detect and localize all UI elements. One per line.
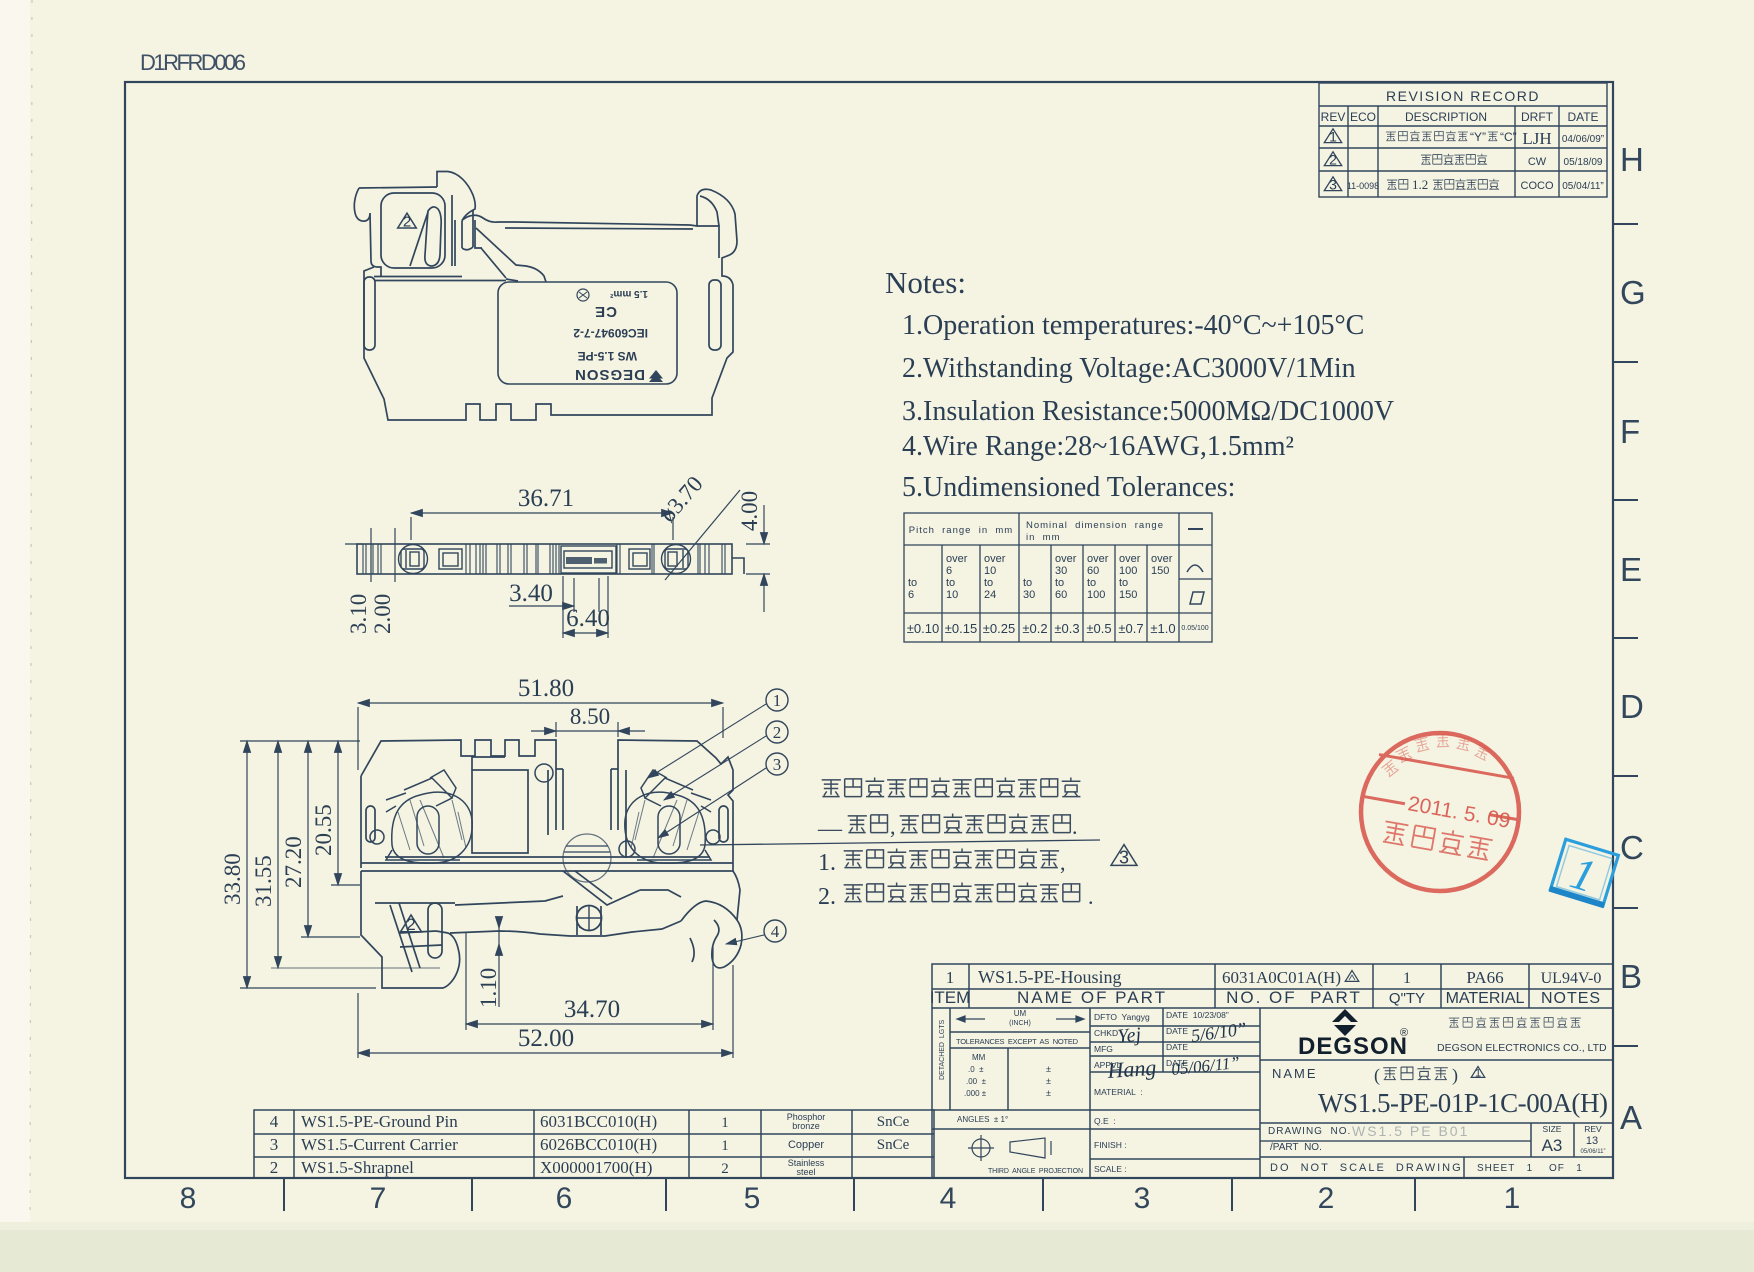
svg-text:2: 2	[721, 1161, 729, 1177]
svg-text:6: 6	[556, 1182, 573, 1215]
svg-text:NAME OF PART: NAME OF PART	[1017, 988, 1167, 1007]
svg-text:NO. OF PART: NO. OF PART	[1226, 988, 1362, 1007]
svg-text:“Y”: “Y”	[1470, 130, 1486, 144]
svg-text:1.2: 1.2	[1412, 177, 1428, 192]
svg-text:2.00: 2.00	[370, 594, 395, 634]
svg-text:Notes:: Notes:	[885, 265, 966, 300]
svg-text:over: over	[946, 553, 968, 565]
svg-text:UL94V-0: UL94V-0	[1541, 970, 1602, 987]
svg-text:DRFT: DRFT	[1521, 110, 1554, 124]
svg-text:1: 1	[1329, 128, 1337, 144]
svg-text:60: 60	[1055, 589, 1067, 601]
svg-text:DATE: DATE	[1166, 1042, 1188, 1052]
svg-text:.: .	[1072, 814, 1078, 839]
svg-text:F: F	[1620, 413, 1640, 450]
svg-text:CW: CW	[1528, 156, 1547, 168]
svg-text:over: over	[984, 553, 1006, 565]
svg-text:E: E	[1620, 551, 1642, 588]
svg-text:A3: A3	[1542, 1136, 1563, 1155]
svg-text:4.Wire Range:28~16AWG,1.5mm²: 4.Wire Range:28~16AWG,1.5mm²	[902, 431, 1294, 462]
svg-text:30: 30	[1055, 565, 1067, 577]
svg-text:36.71: 36.71	[518, 485, 574, 512]
svg-text:to: to	[908, 577, 917, 589]
svg-text:LJH: LJH	[1522, 129, 1551, 148]
svg-text:over: over	[1119, 553, 1141, 565]
svg-text:SnCe: SnCe	[877, 1114, 910, 1130]
svg-text:±0.15: ±0.15	[945, 621, 977, 636]
svg-text:1: 1	[773, 691, 782, 710]
svg-text:to: to	[1023, 577, 1032, 589]
svg-text:WS1.5-PE-Housing: WS1.5-PE-Housing	[978, 967, 1122, 987]
svg-text:2: 2	[1318, 1182, 1335, 1215]
svg-text:D1RFRD006: D1RFRD006	[140, 50, 246, 75]
svg-text:04/06/09”: 04/06/09”	[1562, 134, 1604, 145]
svg-text:,: ,	[1060, 850, 1066, 875]
svg-text:3.10: 3.10	[346, 594, 371, 634]
svg-text:05/06/11”: 05/06/11”	[1581, 1149, 1606, 1155]
svg-text:MM: MM	[972, 1053, 986, 1062]
svg-text:CE: CE	[594, 303, 617, 320]
svg-text:27.20: 27.20	[281, 836, 306, 888]
svg-text:.00 ±: .00 ±	[966, 1077, 987, 1086]
svg-text:6031BCC010(H): 6031BCC010(H)	[540, 1112, 657, 1131]
svg-text:1.: 1.	[818, 850, 836, 876]
svg-text:DFTO Yangyg: DFTO Yangyg	[1094, 1012, 1150, 1022]
svg-text:THIRD ANGLE PROJECTION: THIRD ANGLE PROJECTION	[988, 1168, 1083, 1175]
svg-text:1: 1	[721, 1138, 729, 1154]
svg-text:3: 3	[270, 1135, 279, 1154]
svg-text:3: 3	[773, 755, 782, 774]
svg-text:1.10: 1.10	[476, 968, 501, 1008]
svg-text:4: 4	[270, 1112, 279, 1131]
svg-text:05/04/11”: 05/04/11”	[1562, 181, 1604, 192]
svg-text:—: —	[817, 816, 843, 842]
svg-text:SnCe: SnCe	[877, 1137, 910, 1153]
svg-text:±1.0: ±1.0	[1150, 621, 1175, 636]
svg-text:MATERIAL :: MATERIAL :	[1094, 1087, 1143, 1097]
svg-text:DEGSON: DEGSON	[1298, 1033, 1408, 1060]
svg-text:60: 60	[1087, 565, 1099, 577]
svg-text:2.Withstanding Voltage:AC3000V: 2.Withstanding Voltage:AC3000V/1Min	[902, 353, 1356, 384]
svg-text:UM: UM	[1014, 1009, 1027, 1018]
svg-text:1: 1	[721, 1115, 729, 1131]
svg-text:24: 24	[984, 589, 996, 601]
svg-text:WS1.5-PE-Ground Pin: WS1.5-PE-Ground Pin	[301, 1112, 458, 1131]
svg-text:3.Insulation Resistance:5000MΩ: 3.Insulation Resistance:5000MΩ/DC1000V	[902, 396, 1394, 427]
svg-text:to: to	[1087, 577, 1096, 589]
svg-text:NOTES: NOTES	[1541, 990, 1601, 1007]
svg-text:DATE: DATE	[1567, 110, 1598, 124]
svg-text:(: (	[1374, 1065, 1380, 1086]
svg-text:(INCH): (INCH)	[1009, 1020, 1031, 1027]
svg-text:4: 4	[940, 1182, 957, 1215]
svg-text:2: 2	[1329, 151, 1337, 167]
svg-text:±0.10: ±0.10	[907, 621, 939, 636]
svg-text:to: to	[984, 577, 993, 589]
svg-text:1: 1	[1403, 970, 1411, 987]
svg-text:WS1.5-Shrapnel: WS1.5-Shrapnel	[301, 1158, 414, 1177]
svg-text:A: A	[1620, 1099, 1642, 1136]
svg-text:6026BCC010(H): 6026BCC010(H)	[540, 1135, 657, 1154]
svg-text:DEGSON ELECTRONICS CO., LTD: DEGSON ELECTRONICS CO., LTD	[1437, 1042, 1607, 1054]
svg-text:ITEM: ITEM	[930, 988, 971, 1007]
svg-text:REV: REV	[1321, 110, 1346, 124]
svg-text:7: 7	[370, 1182, 387, 1215]
svg-text:5: 5	[744, 1182, 761, 1215]
svg-text:4.00: 4.00	[737, 491, 762, 531]
svg-text:MATERIAL: MATERIAL	[1446, 990, 1525, 1007]
svg-text:4: 4	[771, 922, 780, 941]
svg-text:SHEET 1: SHEET 1	[1477, 1163, 1533, 1174]
svg-text:1: 1	[1504, 1182, 1521, 1215]
svg-text:Copper: Copper	[788, 1139, 824, 1151]
svg-text:MFG: MFG	[1094, 1044, 1113, 1054]
svg-text:IEC60947-7-2: IEC60947-7-2	[573, 326, 648, 340]
svg-text:1: 1	[946, 968, 955, 987]
svg-text:®: ®	[1400, 1027, 1408, 1039]
svg-text:8: 8	[180, 1182, 197, 1215]
svg-text:±: ±	[1046, 1088, 1051, 1098]
svg-text:in mm: in mm	[1026, 532, 1061, 543]
svg-text:NAME: NAME	[1272, 1066, 1318, 1081]
svg-text:33.80: 33.80	[220, 853, 245, 905]
svg-text:Pitch range in mm: Pitch range in mm	[909, 525, 1013, 536]
svg-text:150: 150	[1151, 565, 1169, 577]
svg-text:Yej: Yej	[1116, 1024, 1142, 1048]
svg-text:to: to	[946, 577, 955, 589]
svg-text:3: 3	[1329, 176, 1337, 192]
svg-text:WS 1.5-PE: WS 1.5-PE	[578, 349, 637, 363]
svg-text:over: over	[1055, 553, 1077, 565]
svg-text:over: over	[1087, 553, 1109, 565]
svg-text:2.: 2.	[818, 884, 836, 910]
svg-text:/PART NO.: /PART NO.	[1270, 1142, 1322, 1153]
svg-text:DESCRIPTION: DESCRIPTION	[1405, 110, 1487, 124]
svg-text:05/18/09: 05/18/09	[1564, 157, 1603, 168]
svg-text:FINISH :: FINISH :	[1094, 1140, 1127, 1150]
svg-text:±: ±	[1046, 1076, 1051, 1086]
svg-text:CHKD: CHKD	[1094, 1028, 1118, 1038]
svg-text:52.00: 52.00	[518, 1025, 574, 1052]
svg-text:5.Undimensioned Tolerances:: 5.Undimensioned Tolerances:	[902, 472, 1235, 503]
svg-text:31.55: 31.55	[251, 855, 276, 907]
svg-text:100: 100	[1119, 565, 1137, 577]
svg-text:2: 2	[403, 214, 411, 231]
svg-text:6: 6	[908, 589, 914, 601]
svg-text:H: H	[1620, 141, 1644, 178]
svg-text:.0 ±: .0 ±	[968, 1065, 984, 1074]
svg-text:±: ±	[1046, 1064, 1051, 1074]
svg-text:to: to	[1055, 577, 1064, 589]
svg-text:DATE 10/23/08”: DATE 10/23/08”	[1166, 1010, 1229, 1020]
svg-text:±0.2: ±0.2	[1022, 621, 1047, 636]
svg-text:1: 1	[1475, 1067, 1481, 1079]
svg-text:.000 ±: .000 ±	[964, 1089, 987, 1098]
svg-text:3.40: 3.40	[509, 580, 553, 607]
svg-text:PA66: PA66	[1466, 968, 1503, 987]
svg-text:6: 6	[946, 565, 952, 577]
svg-text:WS1.5-PE-01P-1C-00A(H): WS1.5-PE-01P-1C-00A(H)	[1318, 1088, 1608, 1118]
svg-text:TOLERANCES EXCEPT AS NOTED: TOLERANCES EXCEPT AS NOTED	[956, 1037, 1079, 1046]
svg-text:3: 3	[1134, 1182, 1151, 1215]
svg-text:DETACHED LGTS: DETACHED LGTS	[939, 1020, 946, 1080]
svg-text:10: 10	[946, 589, 958, 601]
svg-text:to: to	[1119, 577, 1128, 589]
svg-text:C: C	[1620, 829, 1644, 866]
svg-text:13: 13	[1586, 1135, 1598, 1147]
svg-text:SCALE :: SCALE :	[1094, 1164, 1127, 1174]
svg-text:Hang: Hang	[1106, 1055, 1158, 1083]
svg-text:Q"TY: Q"TY	[1389, 990, 1425, 1007]
svg-text:DATE: DATE	[1166, 1026, 1188, 1036]
svg-text:20.55: 20.55	[311, 804, 336, 856]
svg-text:51.80: 51.80	[518, 675, 574, 702]
svg-text:2: 2	[270, 1158, 279, 1177]
svg-text:over: over	[1151, 553, 1173, 565]
svg-text:COCO: COCO	[1521, 180, 1554, 192]
svg-text:WS1.5-Current Carrier: WS1.5-Current Carrier	[301, 1135, 458, 1154]
svg-text:DEGSON: DEGSON	[574, 366, 645, 383]
svg-text:DO NOT SCALE DRAWING: DO NOT SCALE DRAWING	[1270, 1162, 1463, 1174]
svg-text:6031A0C01A(H): 6031A0C01A(H)	[1222, 968, 1341, 987]
svg-text:ECO: ECO	[1350, 110, 1376, 124]
svg-text:±0.7: ±0.7	[1118, 621, 1143, 636]
svg-text:±0.5: ±0.5	[1086, 621, 1111, 636]
svg-text:DRAWING NO.: DRAWING NO.	[1268, 1126, 1351, 1137]
svg-text:REV: REV	[1584, 1124, 1602, 1134]
svg-text:1.Operation temperatures:-40°C: 1.Operation temperatures:-40°C~+105°C	[902, 310, 1364, 341]
svg-text:SIZE: SIZE	[1543, 1124, 1562, 1134]
svg-text:B: B	[1620, 958, 1642, 995]
svg-text:2: 2	[406, 915, 415, 934]
svg-text:REVISION RECORD: REVISION RECORD	[1386, 88, 1540, 104]
svg-text:Q.E :: Q.E :	[1094, 1116, 1116, 1126]
svg-text:3: 3	[1119, 847, 1129, 867]
svg-text:30: 30	[1023, 589, 1035, 601]
svg-text:steel: steel	[796, 1167, 815, 1177]
svg-text:bronze: bronze	[792, 1121, 820, 1131]
svg-text:8.50: 8.50	[570, 704, 610, 729]
svg-text:100: 100	[1087, 589, 1105, 601]
svg-text:34.70: 34.70	[564, 996, 620, 1023]
svg-text:D: D	[1620, 688, 1644, 725]
svg-text:±0.25: ±0.25	[983, 621, 1015, 636]
svg-text:10: 10	[984, 565, 996, 577]
svg-text:ANGLES ± 1°: ANGLES ± 1°	[957, 1115, 1008, 1124]
svg-text:11-0098: 11-0098	[1347, 181, 1379, 191]
svg-text:): )	[1452, 1065, 1458, 1086]
svg-text:0.05/100: 0.05/100	[1181, 625, 1208, 632]
svg-text:±0.3: ±0.3	[1054, 621, 1079, 636]
svg-text:1.5 mm²: 1.5 mm²	[610, 288, 648, 299]
svg-text:“C”: “C”	[1500, 130, 1517, 144]
svg-text:Nominal dimension range: Nominal dimension range	[1026, 520, 1164, 531]
svg-text:150: 150	[1119, 589, 1137, 601]
svg-text:WS1.5 PE B01: WS1.5 PE B01	[1352, 1123, 1469, 1139]
svg-text:G: G	[1620, 274, 1646, 311]
svg-text:6.40: 6.40	[566, 605, 610, 632]
svg-text:,: ,	[890, 814, 896, 839]
svg-text:.: .	[1088, 884, 1094, 909]
svg-text:X000001700(H): X000001700(H)	[540, 1158, 652, 1177]
svg-text:OF 1: OF 1	[1549, 1163, 1583, 1174]
svg-text:2: 2	[773, 723, 782, 742]
